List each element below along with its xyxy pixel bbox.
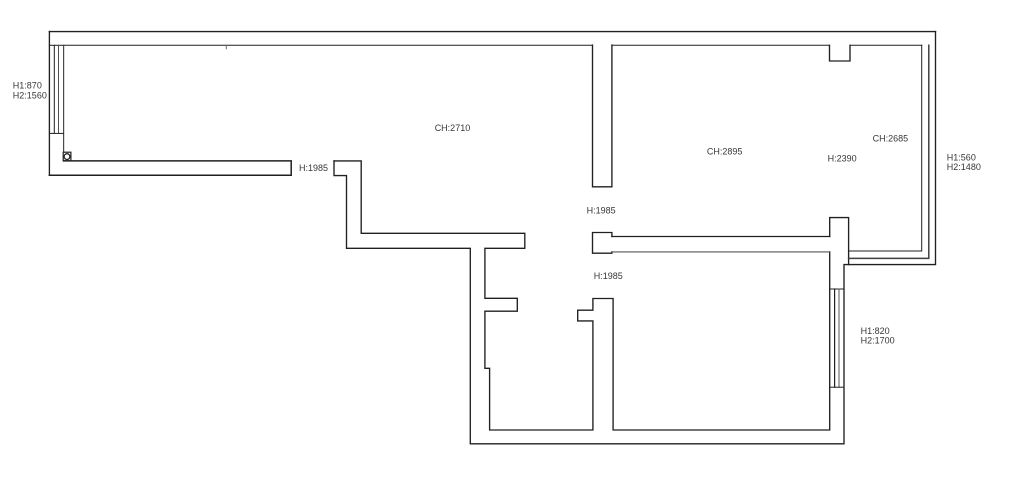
svg-text:H2:1700: H2:1700 (861, 336, 895, 346)
svg-text:CH:2895: CH:2895 (707, 146, 743, 156)
svg-text:H:1985: H:1985 (299, 163, 328, 173)
svg-text:H:1985: H:1985 (587, 206, 616, 216)
svg-text:CH:2710: CH:2710 (435, 123, 471, 133)
svg-text:H1:560: H1:560 (947, 152, 976, 162)
svg-text:H1:870: H1:870 (13, 81, 42, 91)
svg-text:CH:2685: CH:2685 (873, 134, 909, 144)
svg-text:H1:820: H1:820 (861, 326, 890, 336)
svg-text:H2:1480: H2:1480 (947, 162, 981, 172)
svg-text:H2:1560: H2:1560 (13, 90, 47, 100)
svg-text:H:1985: H:1985 (594, 271, 623, 281)
svg-text:H:2390: H:2390 (828, 154, 857, 164)
